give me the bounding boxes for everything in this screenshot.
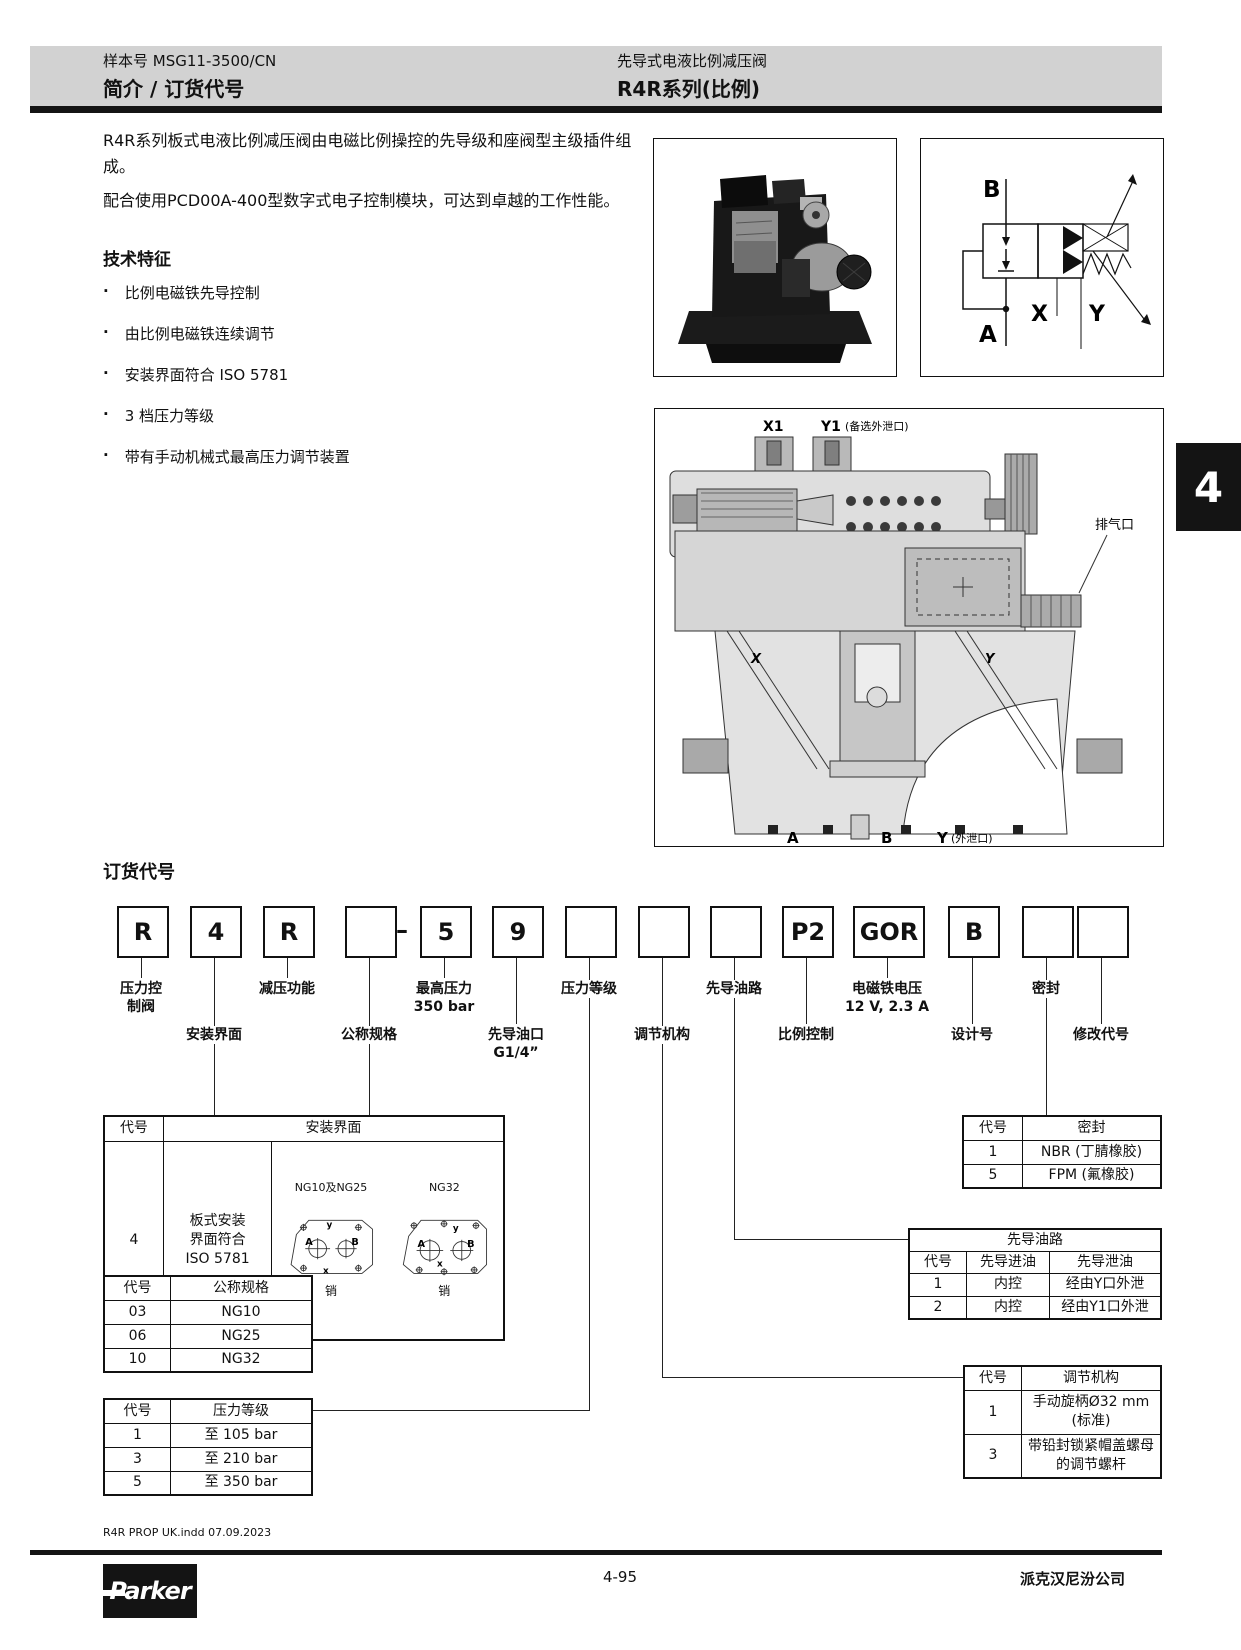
pressure-table-code-header: 代号	[104, 1399, 171, 1423]
pilot-table: 先导油路 代号 先导进油 先导泄油 1 内控 经由Y口外泄 2 内控 经由Y1口…	[908, 1228, 1162, 1320]
table-row: 5 至 350 bar	[104, 1471, 312, 1495]
hydraulic-symbol: B A X Y	[921, 139, 1163, 376]
adjust-table-title: 调节机构	[1022, 1366, 1162, 1390]
order-code-box-3: R	[263, 906, 315, 958]
cross-section-x-channel-label: X	[750, 652, 762, 667]
adjust-table-code-header: 代号	[964, 1366, 1022, 1390]
parker-logo-text: Parker	[109, 1577, 190, 1605]
order-code-box-11: GOR	[853, 906, 925, 958]
callout-pressure-rating: 压力等级	[539, 980, 639, 998]
order-code-box-10: P2	[782, 906, 834, 958]
order-code-box-1: R	[117, 906, 169, 958]
connector-line	[972, 958, 973, 1024]
order-code-box-12: B	[948, 906, 1000, 958]
ordering-heading: 订货代号	[103, 858, 175, 884]
pin-label: 销	[392, 1283, 497, 1299]
feature-item: 由比例电磁铁连续调节	[103, 323, 350, 344]
table-row: 1 手动旋柄Ø32 mm (标准)	[964, 1390, 1161, 1434]
pilot-table-title: 先导油路	[909, 1229, 1161, 1251]
chapter-tab: 4	[1176, 443, 1241, 531]
pilot-table-in-header: 先导进油	[967, 1251, 1050, 1273]
connector-line	[662, 1377, 963, 1378]
symbol-port-x-label: X	[1031, 302, 1048, 327]
connector-line	[806, 958, 807, 1024]
cross-section-x1-label: X1	[763, 419, 784, 435]
callout-pilot-circuit: 先导油路	[684, 980, 784, 998]
table-row: 10 NG32	[104, 1348, 312, 1372]
table-row: 1 内控 经由Y口外泄	[909, 1273, 1161, 1296]
callout-max-pressure: 最高压力 350 bar	[394, 980, 494, 1016]
feature-item: 带有手动机械式最高压力调节装置	[103, 446, 350, 467]
callout-design-number: 设计号	[922, 1026, 1022, 1044]
callout-adjustment: 调节机构	[612, 1026, 712, 1044]
order-code-box-2: 4	[190, 906, 242, 958]
axis-y-label: y	[327, 1220, 333, 1230]
cross-section-y1-label: Y1	[820, 419, 841, 435]
page-number: 4-95	[540, 1568, 700, 1586]
hydraulic-symbol-frame: B A X Y	[920, 138, 1164, 377]
order-code-box-4	[345, 906, 397, 958]
feature-item: 安装界面符合 ISO 5781	[103, 364, 350, 385]
symbol-port-y-label: Y	[1088, 302, 1106, 327]
axis-x-label: x	[323, 1266, 329, 1276]
table-row: 5 FPM (氟橡胶)	[963, 1164, 1161, 1188]
size-table-title: 公称规格	[171, 1276, 313, 1300]
port-pattern-ng32-drawing: y A B x	[392, 1215, 497, 1277]
port-pattern-ng10-drawing: y A B x	[278, 1215, 383, 1277]
mounting-table-title: 安装界面	[163, 1116, 504, 1141]
connector-line	[1101, 958, 1102, 1024]
table-row: 06 NG25	[104, 1324, 312, 1348]
table-row: 03 NG10	[104, 1300, 312, 1324]
file-info: R4R PROP UK.indd 07.09.2023	[103, 1526, 271, 1539]
order-code-box-5: 5	[420, 906, 472, 958]
seal-table-title: 密封	[1023, 1116, 1162, 1140]
order-code-box-6: 9	[492, 906, 544, 958]
order-code-dash: –	[396, 916, 408, 944]
section-title: 简介 / 订货代号	[103, 73, 244, 102]
table-row: 1 至 105 bar	[104, 1423, 312, 1447]
company-name: 派克汉尼汾公司	[900, 1568, 1125, 1589]
intro-paragraph-1: R4R系列板式电液比例减压阀由电磁比例操控的先导级和座阀型主级插件组成。	[103, 128, 663, 181]
callout-pilot-port: 先导油口 G1/4”	[466, 1026, 566, 1062]
symbol-port-b-label: B	[983, 177, 1001, 203]
cross-section-vent-label: 排气口	[1095, 517, 1134, 533]
callout-seal: 密封	[996, 980, 1096, 998]
connector-line	[887, 958, 888, 978]
footer-rule	[30, 1550, 1162, 1555]
mounting-table-code-header: 代号	[104, 1116, 163, 1141]
doc-number: 样本号 MSG11-3500/CN	[103, 50, 276, 71]
features-heading: 技术特征	[103, 245, 171, 270]
parker-logo: Parker	[103, 1564, 197, 1618]
symbol-port-a-label: A	[979, 322, 997, 348]
series-title: R4R系列(比例)	[617, 73, 760, 102]
feature-item: 3 档压力等级	[103, 405, 350, 426]
cross-section-y-label: Y	[936, 829, 949, 846]
port-b-label: B	[352, 1237, 359, 1248]
seal-table: 代号 密封 1 NBR (丁腈橡胶) 5 FPM (氟橡胶)	[962, 1115, 1162, 1189]
order-code-box-14	[1077, 906, 1129, 958]
port-pattern-ng32-label: NG32	[392, 1181, 497, 1196]
axis-y-label: y	[453, 1224, 459, 1234]
seal-table-code-header: 代号	[963, 1116, 1023, 1140]
pressure-table: 代号 压力等级 1 至 105 bar 3 至 210 bar 5 至 350 …	[103, 1398, 313, 1496]
connector-line	[662, 958, 663, 1377]
order-code-box-7	[565, 906, 617, 958]
cross-section-frame: X1 Y1 (备选外泄口)	[654, 408, 1164, 847]
cross-section-drawing: X1 Y1 (备选外泄口)	[655, 409, 1163, 846]
cross-section-b-label: B	[881, 829, 892, 846]
table-row: 3 带铅封锁紧帽盖螺母 的调节螺杆	[964, 1434, 1161, 1478]
pressure-table-title: 压力等级	[171, 1399, 313, 1423]
cross-section-y1-note: (备选外泄口)	[845, 419, 909, 433]
pilot-table-drain-header: 先导泄油	[1050, 1251, 1162, 1273]
intro-paragraph-2: 配合使用PCD00A-400型数字式电子控制模块，可达到卓越的工作性能。	[103, 188, 663, 214]
connector-line	[313, 1410, 589, 1411]
port-a-label: A	[417, 1239, 425, 1250]
port-b-label: B	[467, 1239, 474, 1250]
cross-section-y-channel-label: Y	[985, 652, 996, 667]
table-row: 1 NBR (丁腈橡胶)	[963, 1140, 1161, 1164]
feature-item: 比例电磁铁先导控制	[103, 282, 350, 303]
table-row: 3 至 210 bar	[104, 1447, 312, 1471]
pilot-table-code-header: 代号	[909, 1251, 967, 1273]
port-pattern-ng10-label: NG10及NG25	[278, 1181, 383, 1196]
port-pattern-ng32: NG32 y	[392, 1162, 497, 1318]
connector-line	[287, 958, 288, 978]
callout-mounting-interface: 安装界面	[164, 1026, 264, 1044]
axis-x-label: x	[437, 1259, 443, 1269]
callout-revision-code: 修改代号	[1051, 1026, 1151, 1044]
order-code-box-13	[1022, 906, 1074, 958]
order-code-box-8	[638, 906, 690, 958]
connector-line	[734, 1239, 908, 1240]
datasheet-page: 样本号 MSG11-3500/CN 简介 / 订货代号 先导式电液比例减压阀 R…	[0, 0, 1241, 1650]
order-code-box-9	[710, 906, 762, 958]
features-list: 比例电磁铁先导控制 由比例电磁铁连续调节 安装界面符合 ISO 5781 3 档…	[103, 282, 350, 487]
product-title: 先导式电液比例减压阀	[617, 50, 767, 71]
connector-line	[444, 958, 445, 978]
callout-nominal-size: 公称规格	[319, 1026, 419, 1044]
adjust-table: 代号 调节机构 1 手动旋柄Ø32 mm (标准) 3 带铅封锁紧帽盖螺母 的调…	[963, 1365, 1162, 1479]
callout-pressure-control-valve: 压力控 制阀	[91, 980, 191, 1016]
size-table-code-header: 代号	[104, 1276, 171, 1300]
valve-photo	[654, 139, 896, 376]
callout-proportional-control: 比例控制	[756, 1026, 856, 1044]
cross-section-a-label: A	[787, 829, 799, 846]
cross-section-y-note: (外泄口)	[951, 832, 993, 845]
size-table: 代号 公称规格 03 NG10 06 NG25 10 NG32	[103, 1275, 313, 1373]
port-a-label: A	[306, 1237, 314, 1248]
valve-photo-frame	[653, 138, 897, 377]
connector-line	[516, 958, 517, 1024]
callout-solenoid-voltage: 电磁铁电压 12 V, 2.3 A	[837, 980, 937, 1016]
connector-line	[141, 958, 142, 978]
connector-line	[589, 958, 590, 1411]
header-rule	[30, 106, 1162, 113]
callout-reducing-function: 减压功能	[237, 980, 337, 998]
table-row: 2 内控 经由Y1口外泄	[909, 1296, 1161, 1319]
connector-line	[734, 958, 735, 1239]
